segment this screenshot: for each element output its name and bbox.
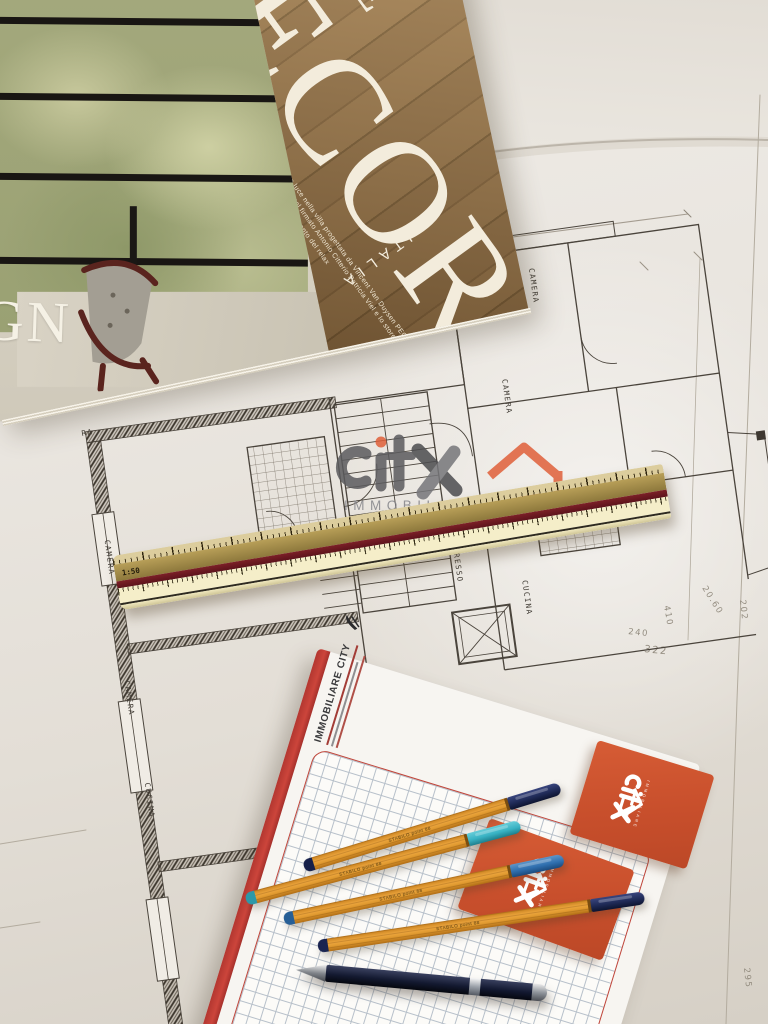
desk-photo-scene: 908 202 240 322 410 20.60 295 RA <box>0 0 768 1024</box>
ballpoint-end-cap <box>531 984 547 1002</box>
dim-right-vertical: 202 <box>737 599 749 621</box>
dim-balcony-width: 240 <box>628 627 650 639</box>
room-label-cucina-center: CUCINA <box>520 580 534 616</box>
ruler-scale-label: 1:50 <box>121 566 140 578</box>
room-label-camera-right: CAMERA <box>500 378 514 414</box>
balcony <box>728 427 768 575</box>
design-caption-partial: GN <box>0 286 73 356</box>
dim-balcony-length: 322 <box>644 644 669 657</box>
room-label-camera-top: CAMERA <box>527 268 541 304</box>
lounge-chair <box>55 245 194 394</box>
dim-bottom-right: 295 <box>741 967 753 989</box>
window-mullion <box>0 173 308 183</box>
dim-diagonal: 20.60 <box>699 584 724 616</box>
pen-brand-text: STABILO point 88 <box>436 920 480 931</box>
window-mullion <box>0 93 308 103</box>
city-logotype <box>341 437 456 494</box>
elevator-shaft <box>452 605 517 665</box>
ballpoint-tip <box>295 962 326 982</box>
dim-balcony-depth: 410 <box>661 605 674 627</box>
